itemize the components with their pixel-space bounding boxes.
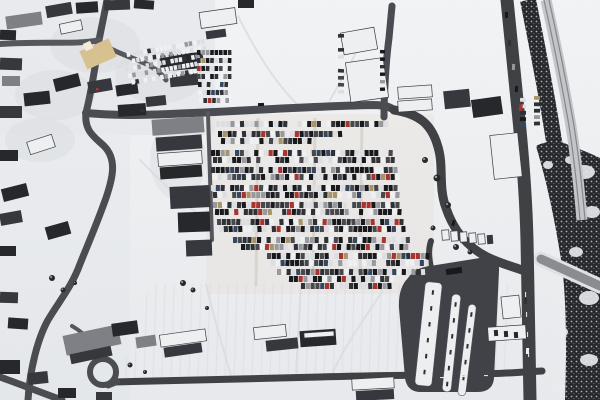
parked-car xyxy=(365,121,369,127)
parked-car xyxy=(347,157,351,163)
parked-car xyxy=(342,202,346,208)
parked-car xyxy=(346,121,350,127)
parked-car xyxy=(380,87,385,91)
parked-car xyxy=(362,202,366,208)
parked-car xyxy=(356,244,360,250)
building xyxy=(0,360,20,374)
parked-car xyxy=(248,209,252,215)
parked-car xyxy=(352,192,356,198)
parked-car xyxy=(520,117,526,121)
parked-car xyxy=(283,150,287,156)
parked-car xyxy=(228,50,232,55)
parked-car xyxy=(341,167,345,173)
parked-car xyxy=(318,276,322,282)
parked-car xyxy=(338,202,342,208)
parked-car xyxy=(340,185,344,191)
building xyxy=(469,233,477,243)
parked-car xyxy=(321,150,325,156)
building xyxy=(0,30,16,41)
parked-car xyxy=(306,209,310,215)
vehicle xyxy=(140,109,145,112)
parked-car xyxy=(268,185,272,191)
parked-car xyxy=(400,260,404,266)
parked-car xyxy=(333,174,337,180)
parked-car xyxy=(301,253,305,259)
parked-car xyxy=(363,237,367,243)
parked-car xyxy=(329,260,333,266)
parked-car xyxy=(249,185,253,191)
parked-car xyxy=(320,253,324,259)
parked-car xyxy=(289,219,293,225)
parked-car xyxy=(313,244,317,250)
parked-car xyxy=(345,185,349,191)
parked-car xyxy=(368,283,372,289)
parked-car xyxy=(238,237,242,243)
parked-car xyxy=(330,209,334,215)
parked-car xyxy=(346,244,350,250)
parked-car xyxy=(252,131,256,137)
parked-car xyxy=(375,276,379,282)
parked-car xyxy=(251,202,255,208)
lane-marking xyxy=(527,332,528,337)
vehicle xyxy=(96,88,99,91)
parked-car xyxy=(206,58,210,63)
parked-car xyxy=(360,121,364,127)
parked-car xyxy=(232,202,236,208)
parked-car xyxy=(215,50,219,55)
parked-car xyxy=(263,209,267,215)
parked-car xyxy=(274,244,278,250)
vehicle xyxy=(508,40,511,46)
parked-car xyxy=(384,121,388,127)
parked-car xyxy=(331,121,335,127)
parked-car xyxy=(242,237,246,243)
parked-car xyxy=(321,167,325,173)
parked-car xyxy=(383,209,387,215)
parked-car xyxy=(380,276,384,282)
parked-car xyxy=(329,237,333,243)
parked-car xyxy=(294,157,298,163)
parked-car xyxy=(282,209,286,215)
parked-car xyxy=(338,131,343,137)
parked-car xyxy=(269,167,273,173)
parked-car xyxy=(218,157,222,163)
parked-car xyxy=(371,174,375,180)
parked-car xyxy=(319,260,323,266)
parked-car xyxy=(225,167,229,173)
parked-car xyxy=(289,276,293,282)
parked-car xyxy=(339,226,343,232)
parked-car xyxy=(387,253,391,259)
parked-car xyxy=(366,219,370,225)
parked-car xyxy=(360,167,364,173)
parked-car xyxy=(318,244,322,250)
parked-car xyxy=(424,260,428,266)
parked-car xyxy=(212,98,216,103)
parked-car xyxy=(353,237,357,243)
parked-car xyxy=(346,219,350,225)
parked-car xyxy=(140,71,144,76)
parked-car xyxy=(380,50,385,54)
parked-car xyxy=(369,121,373,127)
parked-car xyxy=(235,167,239,173)
parked-car xyxy=(330,283,334,289)
parked-car xyxy=(240,121,244,127)
parked-car xyxy=(159,46,163,51)
parked-car xyxy=(227,131,231,137)
parked-car xyxy=(288,138,292,144)
parked-car xyxy=(224,90,228,95)
parked-car xyxy=(217,219,221,225)
parked-car xyxy=(335,269,339,275)
parked-car xyxy=(371,192,375,198)
parked-car xyxy=(218,174,222,180)
parked-car xyxy=(368,209,372,215)
parked-car xyxy=(168,73,172,78)
parked-car xyxy=(351,276,355,282)
parked-car xyxy=(288,185,292,191)
parked-car xyxy=(320,226,324,232)
parked-car xyxy=(298,276,302,282)
parked-car xyxy=(395,174,399,180)
parked-car xyxy=(380,57,385,61)
parked-car xyxy=(226,121,230,127)
parked-car xyxy=(387,283,391,289)
parked-car xyxy=(326,185,331,191)
parked-car xyxy=(363,283,367,289)
parked-car xyxy=(320,283,324,289)
parked-car xyxy=(232,192,236,198)
parked-car xyxy=(292,167,296,173)
tree-snow-highlight xyxy=(206,307,207,308)
parked-car xyxy=(318,202,323,208)
parked-car xyxy=(314,174,318,180)
parked-car xyxy=(277,269,281,275)
parked-car xyxy=(197,66,201,71)
parked-car xyxy=(298,138,302,144)
parked-car xyxy=(338,157,342,163)
parked-car xyxy=(338,174,342,180)
tree xyxy=(205,306,209,310)
parked-car xyxy=(302,150,306,156)
parked-car xyxy=(290,237,294,243)
parked-car xyxy=(325,209,329,215)
parked-car xyxy=(331,167,335,173)
parked-car xyxy=(369,150,373,156)
parked-car xyxy=(397,269,401,275)
parked-car xyxy=(278,150,282,156)
parked-car xyxy=(302,121,306,127)
parked-car xyxy=(329,226,333,232)
parked-car xyxy=(285,192,289,198)
parked-car xyxy=(226,138,230,144)
parked-car xyxy=(210,74,214,79)
parked-car xyxy=(219,50,223,55)
parked-car xyxy=(278,167,282,173)
parked-car xyxy=(360,150,364,156)
parked-car xyxy=(254,121,258,127)
parked-car xyxy=(336,167,340,173)
parked-car xyxy=(309,192,313,198)
parked-car xyxy=(372,237,376,243)
parked-car xyxy=(223,58,227,63)
parked-car xyxy=(384,185,388,191)
parked-car xyxy=(393,167,397,173)
parked-car xyxy=(381,192,385,198)
parked-car xyxy=(299,174,303,180)
parked-car xyxy=(315,237,319,243)
parked-car xyxy=(378,283,382,289)
parked-car xyxy=(338,83,344,87)
parked-car xyxy=(240,150,244,156)
tree-snow-highlight xyxy=(61,288,63,290)
parked-car xyxy=(266,192,270,198)
parked-car xyxy=(331,185,335,191)
parked-car xyxy=(233,226,237,232)
parked-car xyxy=(340,209,344,215)
parked-car xyxy=(219,66,223,71)
parked-car xyxy=(312,185,316,191)
parked-car xyxy=(305,237,309,243)
parked-car xyxy=(295,174,299,180)
parked-car xyxy=(308,219,312,225)
parked-car xyxy=(222,157,226,163)
parked-car xyxy=(323,174,327,180)
parked-car xyxy=(285,202,289,208)
parked-car xyxy=(342,157,346,163)
parked-car xyxy=(276,226,280,232)
parked-car xyxy=(421,269,425,275)
parked-car xyxy=(206,66,210,71)
parked-car xyxy=(380,80,385,84)
parked-car xyxy=(319,131,323,137)
tree-snow-highlight xyxy=(423,158,425,160)
parked-car xyxy=(305,260,309,266)
parked-car xyxy=(206,74,210,79)
parked-car xyxy=(339,283,343,289)
parked-car xyxy=(326,150,330,156)
parked-car xyxy=(267,253,271,259)
parked-car xyxy=(256,202,260,208)
parked-car xyxy=(349,283,353,289)
parked-car xyxy=(393,185,397,191)
parked-car xyxy=(404,244,408,250)
parked-car xyxy=(310,237,314,243)
parked-car xyxy=(300,226,304,232)
parked-car xyxy=(338,48,344,52)
parked-car xyxy=(271,260,275,266)
parked-car xyxy=(287,269,291,275)
building xyxy=(0,106,22,118)
parked-car xyxy=(151,48,155,53)
parked-car xyxy=(375,219,379,225)
parked-car xyxy=(211,167,215,173)
parked-car xyxy=(341,121,345,127)
tree-snow-highlight xyxy=(468,250,470,252)
parked-car xyxy=(220,82,224,87)
parked-car xyxy=(300,260,304,266)
parked-car xyxy=(260,219,264,225)
parked-car xyxy=(271,131,275,137)
parked-car xyxy=(323,276,327,282)
parked-car xyxy=(379,185,383,191)
parked-car xyxy=(390,276,394,282)
parked-car xyxy=(336,150,340,156)
parked-car xyxy=(255,244,259,250)
parked-car xyxy=(301,269,305,275)
parked-car xyxy=(275,192,279,198)
parked-car xyxy=(253,209,257,215)
parked-car xyxy=(388,209,392,215)
parked-car xyxy=(218,202,222,208)
parked-car xyxy=(395,244,399,250)
parked-car xyxy=(274,121,278,127)
parked-car xyxy=(242,131,246,137)
parked-car xyxy=(290,192,294,198)
parked-car xyxy=(245,121,249,127)
parked-car xyxy=(246,219,250,225)
parked-car xyxy=(282,269,286,275)
parked-car xyxy=(377,226,381,232)
parked-car xyxy=(303,244,307,250)
parked-car xyxy=(390,202,394,208)
parked-car xyxy=(420,260,424,266)
building xyxy=(443,89,471,110)
parked-car xyxy=(348,237,352,243)
parked-car xyxy=(280,131,284,137)
parked-car xyxy=(210,58,214,63)
parked-car xyxy=(339,269,343,275)
parked-car xyxy=(230,167,234,173)
building xyxy=(460,232,468,242)
parked-car xyxy=(255,219,259,225)
parked-car xyxy=(161,53,165,58)
tree-snow-highlight xyxy=(128,363,130,365)
parked-car xyxy=(123,60,127,65)
parked-car xyxy=(415,260,419,266)
parked-car xyxy=(355,150,359,156)
parked-car xyxy=(228,66,232,71)
parked-car xyxy=(353,253,357,259)
parked-car xyxy=(349,226,353,232)
parked-car xyxy=(250,138,254,144)
parked-car xyxy=(338,90,344,94)
parked-car xyxy=(319,174,323,180)
parked-car xyxy=(347,174,351,180)
parked-car xyxy=(314,131,318,137)
parked-car xyxy=(386,237,390,243)
parked-car xyxy=(344,253,348,259)
parked-car xyxy=(327,276,331,282)
parked-car xyxy=(380,65,385,68)
parked-car xyxy=(215,209,219,215)
parked-car xyxy=(381,202,385,208)
parked-car xyxy=(293,138,297,144)
parked-car xyxy=(372,260,376,266)
parked-car xyxy=(265,219,269,225)
parked-car xyxy=(300,237,304,243)
parked-car xyxy=(241,244,245,250)
parked-car xyxy=(386,192,390,198)
parked-car xyxy=(309,202,313,208)
parked-car xyxy=(333,157,337,163)
parked-car xyxy=(380,219,384,225)
vehicle xyxy=(519,104,523,111)
parked-car xyxy=(346,276,350,282)
parked-car xyxy=(355,185,359,191)
parked-car xyxy=(259,121,263,127)
parked-car xyxy=(357,202,361,208)
parked-car xyxy=(292,209,296,215)
snow-patch xyxy=(543,161,553,169)
parked-car xyxy=(296,269,300,275)
parked-car xyxy=(299,202,303,208)
building xyxy=(146,95,167,107)
parked-car xyxy=(390,219,394,225)
parked-car xyxy=(251,174,255,180)
parked-car xyxy=(379,167,383,173)
parked-car xyxy=(221,121,225,127)
parked-car xyxy=(273,167,277,173)
building xyxy=(451,231,459,241)
parked-car xyxy=(292,185,296,191)
parked-car xyxy=(188,41,192,46)
parked-car xyxy=(223,50,227,55)
parked-car xyxy=(296,209,300,215)
parked-car xyxy=(374,185,378,191)
parked-car xyxy=(314,260,318,266)
parked-car xyxy=(285,157,289,163)
parked-car xyxy=(258,209,262,215)
parked-car xyxy=(382,226,386,232)
parked-car xyxy=(385,276,389,282)
parked-car xyxy=(338,34,344,38)
building xyxy=(158,150,203,166)
parked-car xyxy=(228,74,232,79)
parked-car xyxy=(232,131,236,137)
parked-car xyxy=(245,138,249,144)
parked-car xyxy=(268,209,272,215)
parked-car xyxy=(390,174,394,180)
parked-car xyxy=(278,138,282,144)
parked-car xyxy=(214,58,218,63)
parked-car xyxy=(325,283,329,289)
parked-car xyxy=(350,167,354,173)
parked-car xyxy=(193,69,197,74)
parked-car xyxy=(337,219,341,225)
parked-car xyxy=(311,269,315,275)
parked-car xyxy=(281,253,285,259)
parked-car xyxy=(303,276,307,282)
parked-car xyxy=(224,209,228,215)
parked-car xyxy=(217,98,221,103)
parked-car xyxy=(264,138,268,144)
building xyxy=(398,85,433,99)
building xyxy=(0,150,18,161)
parked-car xyxy=(342,174,346,180)
parked-car xyxy=(294,192,298,198)
parked-car xyxy=(367,237,371,243)
parked-car xyxy=(352,157,356,163)
parked-car xyxy=(197,58,201,63)
parked-car xyxy=(225,150,229,156)
parked-car xyxy=(378,269,382,275)
parked-car xyxy=(392,269,396,275)
parked-car xyxy=(312,150,316,156)
parked-car xyxy=(265,244,269,250)
parked-car xyxy=(207,82,211,87)
parked-car xyxy=(227,202,231,208)
